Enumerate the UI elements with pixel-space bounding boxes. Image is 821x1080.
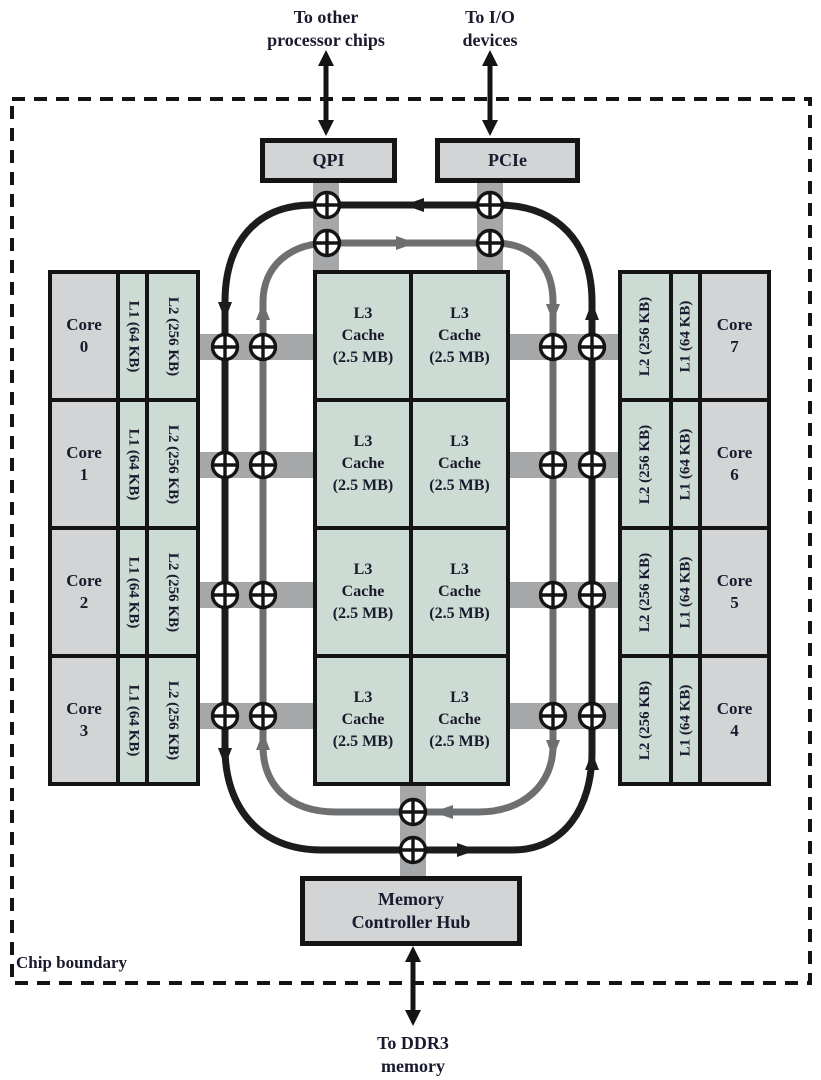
l1-cache-cell: L1 (64 KB)	[673, 658, 698, 782]
l2-cache-cell: L2 (256 KB)	[622, 658, 669, 782]
l2-cache-label: L2 (256 KB)	[164, 552, 181, 631]
l3-cache-cell: L3 Cache (2.5 MB)	[413, 658, 506, 782]
pcie-external-arrow	[482, 50, 498, 136]
ring-stop-icon	[213, 453, 238, 478]
core-label-cell: Core 6	[702, 402, 767, 526]
l2-cache-cell: L2 (256 KB)	[149, 402, 196, 526]
core-label: Core 5	[717, 570, 753, 614]
ring-stop-icon	[580, 583, 605, 608]
ring-stop-icon	[541, 583, 566, 608]
l1-cache-label: L1 (64 KB)	[677, 684, 694, 756]
l1-cache-label: L1 (64 KB)	[677, 300, 694, 372]
ring-stop-icon	[541, 453, 566, 478]
ring-stop-icon	[213, 583, 238, 608]
l2-cache-cell: L2 (256 KB)	[149, 274, 196, 398]
chip-boundary-label: Chip boundary	[16, 953, 127, 973]
ring-stop-icon	[251, 453, 276, 478]
l2-cache-label: L2 (256 KB)	[637, 680, 654, 759]
ring-stop-icon	[251, 335, 276, 360]
l2-cache-label: L2 (256 KB)	[637, 552, 654, 631]
multicore-chip-diagram: To other processor chips To I/O devices …	[0, 0, 821, 1080]
l3-cache-label: L3 Cache (2.5 MB)	[333, 303, 393, 369]
core-label-cell: Core 5	[702, 530, 767, 654]
core-label: Core 4	[717, 698, 753, 742]
l2-cache-cell: L2 (256 KB)	[622, 402, 669, 526]
l1-cache-cell: L1 (64 KB)	[120, 402, 145, 526]
l3-cache-cell: L3 Cache (2.5 MB)	[413, 530, 506, 654]
l3-cache-label: L3 Cache (2.5 MB)	[429, 431, 489, 497]
l3-cache-cell: L3 Cache (2.5 MB)	[317, 402, 409, 526]
l3-cache-cell: L3 Cache (2.5 MB)	[413, 402, 506, 526]
ring-stop-icon	[251, 704, 276, 729]
l1-cache-label: L1 (64 KB)	[124, 428, 141, 500]
l1-cache-cell: L1 (64 KB)	[120, 530, 145, 654]
ring-stop-icon	[580, 335, 605, 360]
l1-cache-label: L1 (64 KB)	[124, 300, 141, 372]
l2-cache-label: L2 (256 KB)	[637, 424, 654, 503]
core-label: Core 3	[66, 698, 102, 742]
l3-cache-label: L3 Cache (2.5 MB)	[333, 559, 393, 625]
l1-cache-cell: L1 (64 KB)	[120, 658, 145, 782]
l3-cache-cell: L3 Cache (2.5 MB)	[317, 274, 409, 398]
core-label-cell: Core 4	[702, 658, 767, 782]
l2-cache-cell: L2 (256 KB)	[622, 530, 669, 654]
l2-cache-cell: L2 (256 KB)	[149, 658, 196, 782]
l1-cache-cell: L1 (64 KB)	[673, 530, 698, 654]
core-label: Core 0	[66, 314, 102, 358]
ring-stop-icon	[401, 800, 426, 825]
l3-cache-label: L3 Cache (2.5 MB)	[429, 687, 489, 753]
ring-stop-icon	[213, 704, 238, 729]
ring-stop-icon	[580, 704, 605, 729]
ring-stop-icon	[478, 231, 503, 256]
qpi-box: QPI	[260, 138, 397, 183]
ring-stop-icon	[580, 453, 605, 478]
ring-stop-icon	[213, 335, 238, 360]
l1-cache-label: L1 (64 KB)	[677, 428, 694, 500]
memory-controller-hub-box: Memory Controller Hub	[300, 876, 522, 946]
to-io-devices-label: To I/O devices	[409, 6, 571, 52]
l1-cache-cell: L1 (64 KB)	[673, 402, 698, 526]
qpi-external-arrow	[318, 50, 334, 136]
l2-cache-cell: L2 (256 KB)	[622, 274, 669, 398]
l3-cache-label: L3 Cache (2.5 MB)	[429, 303, 489, 369]
ring-stop-icon	[401, 838, 426, 863]
ring-stop-icon	[315, 193, 340, 218]
l1-cache-label: L1 (64 KB)	[124, 556, 141, 628]
l1-cache-cell: L1 (64 KB)	[673, 274, 698, 398]
l2-cache-label: L2 (256 KB)	[164, 680, 181, 759]
right-core-block: L2 (256 KB) L1 (64 KB) Core 7 L2 (256 KB…	[618, 270, 771, 786]
l1-cache-label: L1 (64 KB)	[124, 684, 141, 756]
core-label: Core 7	[717, 314, 753, 358]
l1-cache-cell: L1 (64 KB)	[120, 274, 145, 398]
l3-cache-label: L3 Cache (2.5 MB)	[333, 687, 393, 753]
l2-cache-cell: L2 (256 KB)	[149, 530, 196, 654]
core-label: Core 2	[66, 570, 102, 614]
l2-cache-label: L2 (256 KB)	[164, 296, 181, 375]
l3-cache-label: L3 Cache (2.5 MB)	[429, 559, 489, 625]
core-label-cell: Core 0	[52, 274, 116, 398]
left-core-block: Core 0 L1 (64 KB) L2 (256 KB) Core 1 L1 …	[48, 270, 200, 786]
l2-cache-label: L2 (256 KB)	[164, 424, 181, 503]
to-ddr3-memory-label: To DDR3 memory	[343, 1032, 483, 1078]
ring-stop-icon	[251, 583, 276, 608]
l3-cache-cell: L3 Cache (2.5 MB)	[413, 274, 506, 398]
l3-cache-label: L3 Cache (2.5 MB)	[333, 431, 393, 497]
l1-cache-label: L1 (64 KB)	[677, 556, 694, 628]
l3-cache-block: L3 Cache (2.5 MB) L3 Cache (2.5 MB) L3 C…	[313, 270, 510, 786]
core-label: Core 1	[66, 442, 102, 486]
to-other-processors-label: To other processor chips	[236, 6, 416, 52]
ring-stop-icon	[315, 231, 340, 256]
core-label-cell: Core 2	[52, 530, 116, 654]
core-label-cell: Core 7	[702, 274, 767, 398]
l3-cache-cell: L3 Cache (2.5 MB)	[317, 658, 409, 782]
ring-stop-icon	[541, 704, 566, 729]
core-label-cell: Core 3	[52, 658, 116, 782]
ring-stop-icon	[541, 335, 566, 360]
l3-cache-cell: L3 Cache (2.5 MB)	[317, 530, 409, 654]
core-label-cell: Core 1	[52, 402, 116, 526]
l2-cache-label: L2 (256 KB)	[637, 296, 654, 375]
pcie-box: PCIe	[435, 138, 580, 183]
ddr3-external-arrow	[405, 946, 421, 1026]
core-label: Core 6	[717, 442, 753, 486]
ring-stop-icon	[478, 193, 503, 218]
